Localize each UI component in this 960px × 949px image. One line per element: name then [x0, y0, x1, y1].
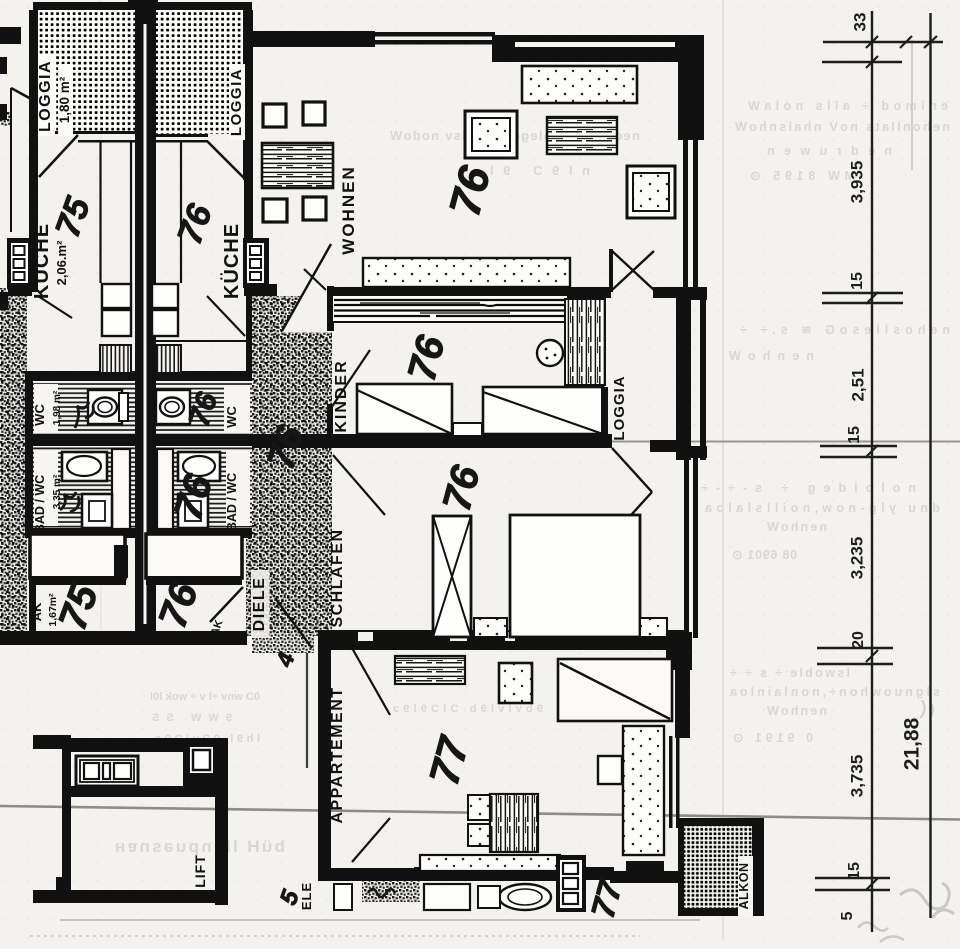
- svg-text:AK: AK: [29, 602, 44, 621]
- svg-text:20: 20: [850, 631, 867, 649]
- svg-text:LOGGIA: LOGGIA: [228, 68, 245, 136]
- svg-text:LOGGIA: LOGGIA: [611, 375, 628, 440]
- svg-text:MW 8195 ⊙: MW 8195 ⊙: [750, 169, 855, 183]
- svg-text:33: 33: [850, 13, 869, 32]
- svg-text:ALKON: ALKON: [737, 863, 751, 910]
- svg-text:2,51: 2,51: [848, 368, 867, 401]
- svg-text:WC: WC: [32, 404, 47, 426]
- svg-text:slgnuowhon÷,nonlainloa: slgnuowhon÷,nonlainloa: [729, 685, 940, 699]
- svg-text:LIFT: LIFT: [192, 854, 208, 888]
- svg-text:KÜCHE: KÜCHE: [220, 223, 243, 299]
- svg-text:3,935: 3,935: [847, 161, 866, 204]
- svg-text:BAD / WC: BAD / WC: [33, 475, 47, 533]
- svg-text:noloideg ÷ s-÷-÷: noloideg ÷ s-÷-÷: [701, 481, 916, 495]
- svg-text:SCHLAFEN: SCHLAFEN: [329, 528, 346, 627]
- svg-text:15: 15: [849, 272, 866, 290]
- svg-text:APPARTEMENT: APPARTEMENT: [329, 686, 346, 823]
- svg-text:3,35 m²: 3,35 m²: [52, 474, 63, 509]
- svg-text:15: 15: [846, 426, 863, 444]
- svg-text:LOGGIA: LOGGIA: [37, 60, 54, 132]
- svg-text:2,06.m²: 2,06.m²: [54, 240, 69, 285]
- svg-text:KÜCHE: KÜCHE: [30, 223, 53, 299]
- svg-text:WOHNEN: WOHNEN: [339, 165, 358, 254]
- svg-text:WC: WC: [224, 406, 239, 428]
- svg-text:büH llɐnpuəsnɐʜ: büH llɐnpuəsnɐʜ: [115, 837, 285, 856]
- svg-text:BAD / WC: BAD / WC: [225, 473, 239, 531]
- svg-text:3,735: 3,735: [847, 755, 866, 798]
- svg-text:KINDER: KINDER: [333, 359, 350, 432]
- svg-text:nenhoW: nenhoW: [767, 520, 827, 534]
- svg-text:1,80 m²: 1,80 m²: [57, 76, 72, 123]
- svg-text:21,88: 21,88: [901, 717, 924, 770]
- svg-text:15: 15: [846, 862, 863, 880]
- svg-text:3,235: 3,235: [847, 537, 866, 580]
- svg-text:1,98 m²: 1,98 m²: [52, 390, 63, 425]
- svg-text:5: 5: [839, 911, 856, 920]
- svg-text:nehonllats noV nhalsnhoW: nehonllats noV nhalsnhoW: [735, 120, 950, 134]
- svg-text:0Ɔ wnv ÷l v ÷ wok l0l: 0Ɔ wnv ÷l v ÷ wok l0l: [150, 691, 260, 703]
- svg-text:08 6901 ⊙: 08 6901 ⊙: [732, 548, 797, 562]
- svg-text:nenhoW: nenhoW: [767, 704, 827, 718]
- svg-text:DIELE: DIELE: [251, 577, 268, 632]
